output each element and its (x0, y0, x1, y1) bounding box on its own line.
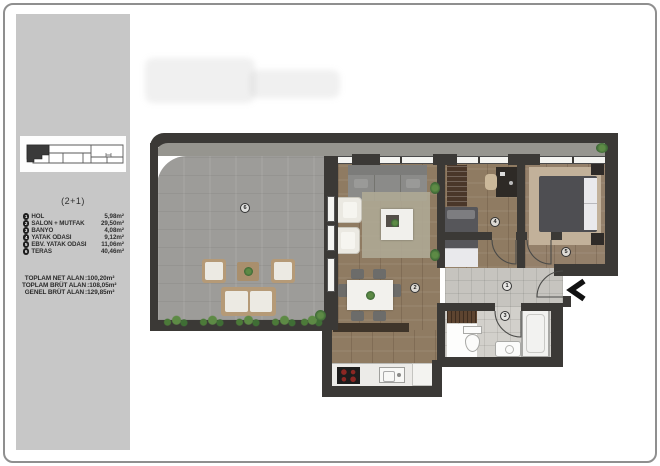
legend-row-salon: 2 SALON + MUTFAK 29,50m² (23, 220, 124, 227)
room-marker-teras: 6 (240, 203, 250, 213)
parapet-concrete (155, 143, 618, 156)
legend-label: TERAS (31, 248, 101, 255)
dining-chair (373, 311, 386, 321)
room-marker-ebv-yatak: 5 (561, 247, 571, 257)
legend-area: 11,06m² (101, 241, 124, 248)
legend-label: YATAK ODASI (31, 234, 104, 241)
window-mullion (400, 157, 402, 163)
ghost-outline (250, 70, 340, 98)
blanket (444, 248, 478, 267)
bathroom-sink (495, 341, 521, 357)
wall (322, 324, 332, 394)
legend-panel: (2+1) 1 HOL 5,98m² 2 SALON + MUTFAK 29,5… (16, 14, 130, 450)
total-genel-row: GENEL BRÜT ALAN :129,85m² (22, 289, 125, 296)
bathtub (521, 309, 550, 358)
dining-table (347, 280, 393, 310)
wall (432, 360, 442, 397)
kitchen-sink (379, 367, 405, 383)
planter-plants (196, 315, 226, 328)
dining-chair (351, 269, 364, 279)
total-label: GENEL BRÜT ALAN (22, 289, 84, 296)
wall (445, 232, 492, 240)
stove (337, 367, 360, 384)
bedding (584, 178, 597, 230)
planter-plants (160, 315, 190, 328)
living-armchair (335, 197, 362, 223)
legend-num-6: 6 (23, 248, 29, 254)
wall (322, 386, 442, 397)
bookshelf (447, 165, 467, 207)
legend-row-ebv-yatak: 5 EBV. YATAK ODASI 11,06m² (23, 241, 124, 248)
key-plan (20, 136, 126, 172)
room-legend: 1 HOL 5,98m² 2 SALON + MUTFAK 29,50m² 3 … (23, 213, 124, 255)
total-value: :108,05m² (87, 282, 125, 289)
plant-pot (315, 310, 326, 321)
area-totals: TOPLAM NET ALAN :100,20m² TOPLAM BRÜT AL… (22, 275, 125, 297)
terrace-coffee-table (237, 262, 259, 281)
room-marker-hol: 1 (502, 281, 512, 291)
terrace-armchair (271, 259, 295, 283)
double-bed (539, 176, 597, 232)
legend-area: 29,50m² (101, 220, 124, 227)
floorplan-page: (2+1) 1 HOL 5,98m² 2 SALON + MUTFAK 29,5… (0, 0, 660, 466)
plant-pot (430, 249, 440, 261)
wall (563, 268, 571, 273)
room-marker-yatak: 4 (490, 217, 500, 227)
total-value: :129,85m² (85, 289, 125, 296)
legend-row-yatak: 4 YATAK ODASI 9,12m² (23, 234, 124, 241)
plant-pot (430, 182, 440, 194)
terrace-sofa (221, 287, 276, 316)
wall (437, 357, 563, 367)
plan-type-label: (2+1) (16, 196, 130, 206)
wall (605, 140, 618, 276)
nightstand (591, 163, 604, 175)
legend-num-1: 1 (23, 213, 29, 219)
plant-pot (596, 143, 608, 153)
pillow (447, 210, 475, 219)
terrace-window (327, 225, 335, 251)
terrace-armchair (202, 259, 226, 283)
planter-plants (268, 315, 298, 328)
legend-row-teras: 6 TERAS 40,46m² (23, 248, 124, 255)
wall (150, 143, 158, 331)
room-marker-salon: 2 (410, 283, 420, 293)
legend-area: 40,46m² (101, 248, 124, 255)
chevron-left-icon (571, 281, 584, 299)
legend-label: SALON + MUTFAK (31, 220, 101, 227)
wall (516, 232, 527, 240)
terrace-door (327, 258, 335, 292)
ghost-outline (145, 58, 255, 103)
desk-chair (485, 174, 497, 190)
legend-label: BANYO (31, 227, 104, 234)
hall-bench (447, 309, 477, 323)
wall (445, 303, 495, 311)
window-mullion (478, 157, 480, 163)
dining-chair (351, 311, 364, 321)
coffee-table (381, 209, 413, 240)
terrace-window (327, 196, 335, 222)
legend-row-banyo: 3 BANYO 4,08m² (23, 227, 124, 234)
toilet-tank (463, 326, 482, 334)
desk (496, 167, 518, 197)
key-plan-drawing (20, 136, 126, 172)
legend-num-3: 3 (23, 227, 29, 233)
wall-pier (508, 154, 540, 165)
legend-area: 5,98m² (104, 213, 124, 220)
nightstand (591, 233, 604, 245)
legend-row-hol: 1 HOL 5,98m² (23, 213, 124, 220)
legend-label: HOL (31, 213, 104, 220)
window-mullion (572, 157, 574, 163)
legend-label: EBV. YATAK ODASI (31, 241, 101, 248)
legend-area: 9,12m² (104, 234, 124, 241)
legend-num-4: 4 (23, 234, 29, 240)
legend-area: 4,08m² (104, 227, 124, 234)
kitchen-floor (330, 330, 440, 366)
wall (551, 232, 562, 240)
wall-pier (433, 154, 457, 165)
legend-num-2: 2 (23, 220, 29, 226)
wall (563, 296, 571, 307)
wall-pier (352, 154, 380, 165)
wall (517, 162, 525, 268)
legend-num-5: 5 (23, 241, 29, 247)
room-marker-banyo: 3 (500, 311, 510, 321)
kitchen-island (333, 323, 409, 332)
dining-chair (373, 269, 386, 279)
total-value: :100,20m² (85, 275, 125, 282)
planter-plants (232, 315, 262, 328)
